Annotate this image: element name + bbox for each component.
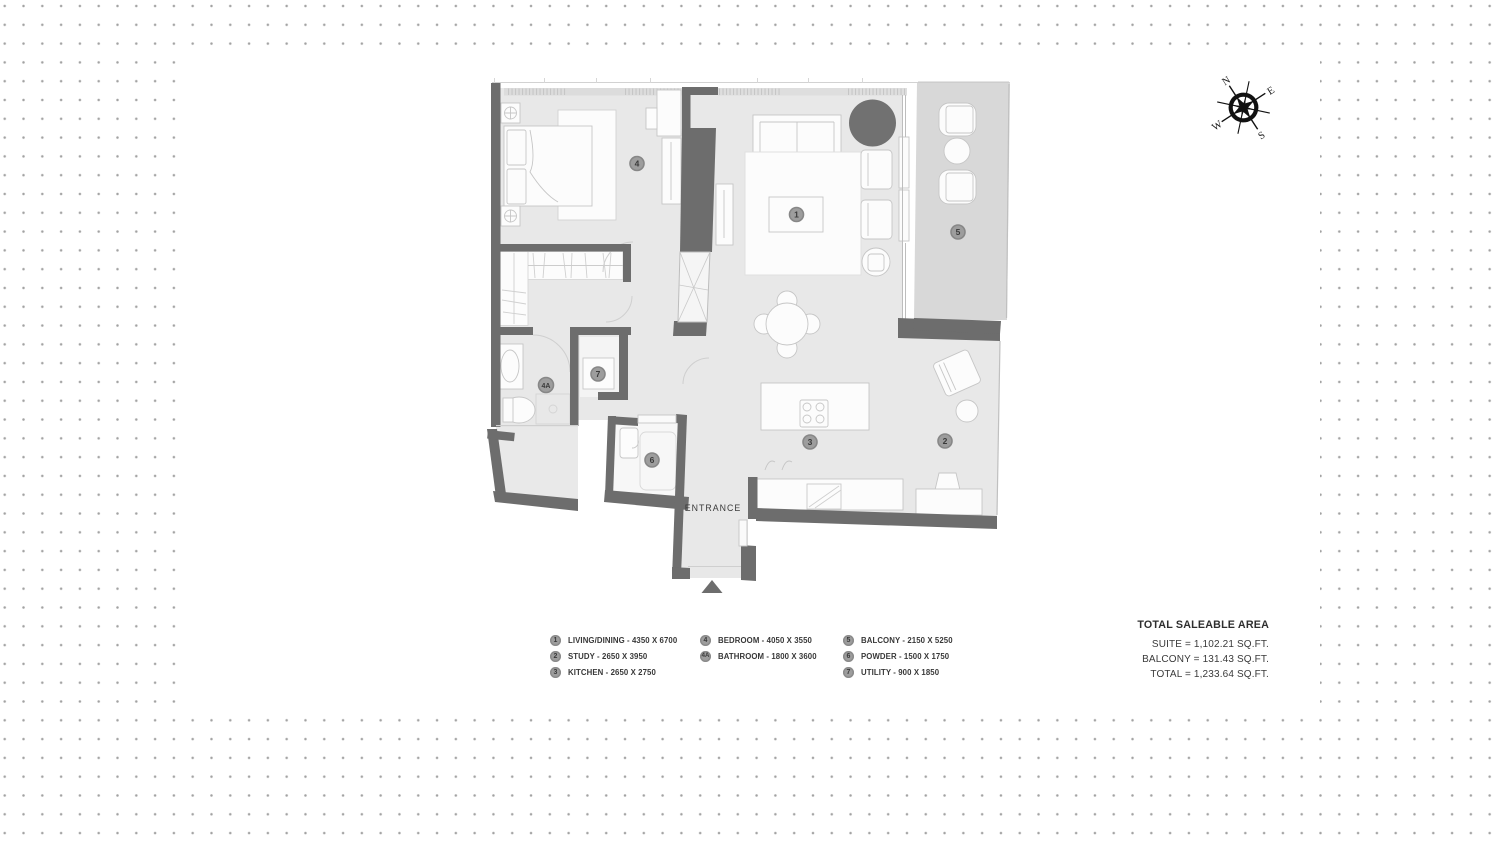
svg-text:S: S	[1257, 130, 1268, 142]
svg-text:4A: 4A	[542, 383, 551, 390]
svg-text:N: N	[1220, 75, 1233, 89]
svg-text:2: 2	[943, 436, 948, 446]
svg-text:1: 1	[794, 210, 799, 220]
svg-text:5: 5	[956, 227, 961, 237]
svg-text:4: 4	[635, 159, 640, 169]
svg-text:7: 7	[596, 369, 601, 379]
svg-text:E: E	[1265, 85, 1276, 98]
svg-text:ENTRANCE: ENTRANCE	[685, 503, 741, 513]
svg-text:3: 3	[808, 437, 813, 447]
svg-text:6: 6	[650, 455, 655, 465]
